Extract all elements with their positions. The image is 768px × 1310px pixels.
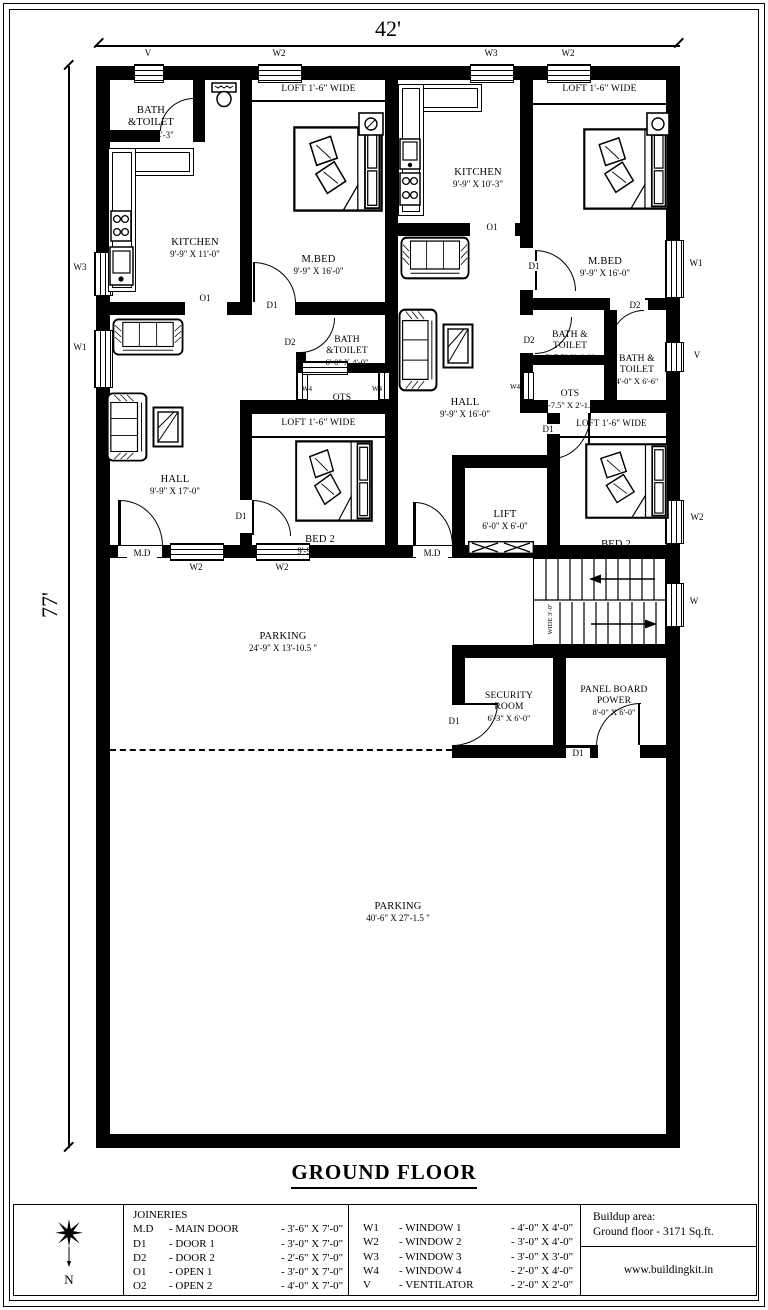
door-mark: D2 bbox=[518, 335, 540, 345]
room-label-kitchen-right: KITCHEN9'-9" X 10'-3" bbox=[422, 148, 534, 209]
width-dimension: 42' bbox=[318, 16, 458, 42]
window-icon bbox=[258, 64, 302, 83]
top-dimension-line bbox=[96, 45, 680, 47]
buildup-area-block: Buildup area: Ground floor - 3171 Sq.ft. bbox=[581, 1205, 756, 1247]
ventilator-mark: V bbox=[688, 350, 706, 360]
wall bbox=[385, 66, 398, 558]
window-mark: W1 bbox=[684, 258, 708, 268]
wall bbox=[227, 302, 252, 315]
door-mark: D1 bbox=[566, 748, 590, 758]
door-mark: D2 bbox=[188, 113, 210, 123]
room-label-loft-tr: LOFT 1'-6" WIDE bbox=[533, 84, 666, 94]
wall bbox=[96, 302, 185, 315]
room-label-hall-right: HALL9'-9" X 16'-0" bbox=[410, 378, 520, 439]
room-label-mbed-left: M.BED9'-9" X 16'-0" bbox=[252, 235, 385, 296]
wall bbox=[640, 745, 666, 758]
buildup-cell: Buildup area: Ground floor - 3171 Sq.ft.… bbox=[580, 1205, 756, 1295]
bed-icon bbox=[295, 440, 373, 522]
wall bbox=[240, 414, 252, 500]
room-label-hall-left: HALL9'-9" X 17'-0" bbox=[120, 455, 230, 516]
room-label-panel-board: PANEL BOARD POWER8'-0" X 6'-0" bbox=[562, 666, 666, 736]
left-dimension-line bbox=[68, 66, 70, 1148]
loft-line bbox=[252, 100, 385, 102]
door-mark: D1 bbox=[230, 511, 252, 521]
room-label-loft-ml: LOFT 1'-6" WIDE bbox=[252, 418, 385, 428]
room-label-kitchen-left: KITCHEN9'-9" X 11'-0" bbox=[130, 218, 260, 279]
wall bbox=[295, 302, 385, 315]
door-mark: D1 bbox=[260, 300, 284, 310]
open-mark: O1 bbox=[470, 222, 514, 232]
window-icon bbox=[665, 240, 684, 298]
room-label-parking2: PARKING40'-6" X 27'-1.5 " bbox=[308, 882, 488, 943]
room-label-security-room: SECURITY ROOM6'-3" X 6'-0" bbox=[464, 672, 554, 742]
room-label-mbed-right: M.BED9'-9" X 16'-0" bbox=[545, 237, 665, 298]
legend-row: O2- OPEN 2- 4'-0" X 7'-0" bbox=[133, 1279, 348, 1293]
tv-icon bbox=[442, 323, 474, 369]
window-icon bbox=[522, 372, 534, 400]
bed-icon bbox=[293, 126, 383, 212]
room-label-lift: LIFT6'-0" X 6'-0" bbox=[463, 490, 547, 551]
ventilator-icon bbox=[134, 64, 164, 83]
ventilator-mark: V bbox=[134, 48, 162, 58]
wall bbox=[520, 290, 533, 315]
wall bbox=[547, 455, 560, 558]
legend-row: M.D- MAIN DOOR- 3'-6" X 7'-0" bbox=[133, 1222, 348, 1236]
toilet-icon bbox=[210, 82, 238, 108]
wall bbox=[515, 223, 533, 236]
floor-plan-sheet: 42' 77' bbox=[0, 0, 768, 1310]
website-link[interactable]: www.buildingkit.in bbox=[624, 1264, 713, 1276]
sofa-icon bbox=[400, 236, 470, 280]
door-mark: D1 bbox=[442, 716, 466, 726]
door-mark: D2 bbox=[622, 300, 648, 310]
window-mark: W2 bbox=[547, 48, 589, 58]
door-leaf bbox=[413, 502, 416, 545]
window-mark: W2 bbox=[182, 562, 210, 572]
north-label: N bbox=[58, 1275, 80, 1285]
room-label-bed2-right: BED 28'-3" X 10'-0" bbox=[566, 520, 666, 581]
north-compass-icon bbox=[51, 1219, 87, 1273]
legend-row: W1- WINDOW 1- 4'-0" X 4'-0" bbox=[363, 1221, 580, 1235]
joineries-title: JOINERIES bbox=[133, 1208, 348, 1222]
window-mark: W4 bbox=[300, 384, 314, 394]
window-icon bbox=[665, 583, 684, 627]
stove-icon bbox=[110, 210, 132, 242]
wall bbox=[452, 745, 566, 758]
door-mark: D1 bbox=[522, 261, 546, 271]
window-mark: W2 bbox=[258, 48, 300, 58]
window-mark: W bbox=[684, 596, 704, 606]
main-door-mark: M.D bbox=[416, 548, 448, 558]
wall bbox=[520, 236, 533, 248]
wall bbox=[193, 130, 205, 142]
window-mark: W1 bbox=[68, 342, 92, 352]
wall bbox=[533, 298, 610, 310]
room-label-bath-toilet-r2: BATH & TOILET4'-0" X 6'-6" bbox=[606, 335, 668, 405]
open-mark: O1 bbox=[192, 293, 218, 303]
dresser-icon bbox=[358, 112, 384, 136]
stove-icon bbox=[399, 172, 421, 206]
legend-row: D1- DOOR 1- 3'-0" X 7'-0" bbox=[133, 1237, 348, 1251]
window-icon bbox=[170, 543, 224, 561]
legend-table: N JOINERIES M.D- MAIN DOOR- 3'-6" X 7'-0… bbox=[13, 1204, 757, 1296]
legend-row: D2- DOOR 2- 2'-6" X 7'-0" bbox=[133, 1251, 348, 1265]
sofa-icon bbox=[112, 318, 184, 356]
sofa-icon bbox=[106, 392, 148, 462]
legend-row: V- VENTILATOR- 2'-0" X 2'-0" bbox=[363, 1278, 580, 1292]
buildup-label: Buildup area: bbox=[593, 1210, 756, 1225]
legend-row: W3- WINDOW 3- 3'-0" X 3'-0" bbox=[363, 1250, 580, 1264]
window-icon bbox=[94, 330, 113, 388]
tv-icon bbox=[152, 406, 184, 448]
wall bbox=[398, 223, 470, 236]
buildup-value: Ground floor - 3171 Sq.ft. bbox=[593, 1225, 756, 1240]
door-mark: D2 bbox=[280, 337, 300, 347]
page-title: GROUND FLOOR bbox=[291, 1160, 476, 1189]
wall bbox=[240, 533, 252, 545]
legend-row: W4- WINDOW 4- 2'-0" X 4'-0" bbox=[363, 1264, 580, 1278]
window-mark: W2 bbox=[684, 512, 710, 522]
window-mark: W4 bbox=[370, 384, 384, 394]
door-mark: D1 bbox=[536, 424, 560, 434]
window-icon bbox=[547, 64, 591, 83]
wall bbox=[96, 1134, 680, 1148]
height-dimension: 77' bbox=[37, 573, 63, 637]
windows-cell: W1- WINDOW 1- 4'-0" X 4'-0" W2- WINDOW 2… bbox=[348, 1205, 580, 1295]
sheet-title-row: GROUND FLOOR bbox=[0, 1160, 768, 1189]
dresser-icon bbox=[646, 112, 670, 136]
parking-boundary-dashed-line bbox=[110, 749, 452, 751]
window-mark: W2 bbox=[268, 562, 296, 572]
joineries-cell: JOINERIES M.D- MAIN DOOR- 3'-6" X 7'-0" … bbox=[123, 1205, 348, 1295]
wall bbox=[452, 455, 560, 468]
stairs-width-note: WIDE 3'-0" bbox=[546, 596, 556, 642]
window-mark: W3 bbox=[470, 48, 512, 58]
legend-row: O1- OPEN 1- 3'-0" X 7'-0" bbox=[133, 1265, 348, 1279]
room-label-parking1: PARKING24'-9" X 13'-10.5 " bbox=[198, 612, 368, 673]
door-arc bbox=[415, 502, 453, 546]
window-mark: W3 bbox=[68, 262, 92, 272]
legend-row: W2- WINDOW 2- 3'-0" X 4'-0" bbox=[363, 1235, 580, 1249]
room-label-loft-tl: LOFT 1'-6" WIDE bbox=[252, 84, 385, 94]
loft-line bbox=[252, 436, 385, 438]
loft-line bbox=[533, 103, 666, 105]
room-label-bath-toilet-tl: BATH &TOILET6'-6" X 4'-3" bbox=[110, 86, 192, 159]
window-icon bbox=[470, 64, 514, 83]
main-door-mark: M.D bbox=[127, 548, 157, 558]
wall bbox=[645, 298, 666, 310]
north-compass-cell: N bbox=[14, 1205, 123, 1295]
room-label-loft-mr: LOFT 1'-6" WIDE bbox=[557, 418, 666, 428]
bed-icon bbox=[583, 128, 669, 210]
window-mark: W4 bbox=[508, 382, 522, 392]
sink-icon bbox=[399, 138, 421, 170]
bed-icon bbox=[585, 443, 669, 519]
door-leaf bbox=[252, 500, 254, 535]
